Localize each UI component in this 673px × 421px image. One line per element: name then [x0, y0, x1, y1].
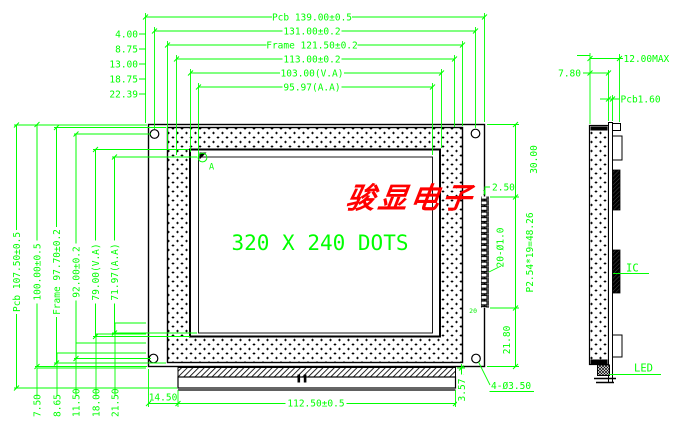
dim-tail-width: 112.50±0.5: [287, 399, 344, 410]
dim-aa-height: 71.97(A.A): [110, 243, 121, 300]
dim-offset-3: 13.00: [109, 60, 138, 71]
front-view: A 320 X 240 DOTS 骏显电子: [149, 125, 490, 391]
side-view: [590, 123, 623, 383]
dim-va-width: 103.00(V.A): [281, 69, 344, 80]
side-dimension-ticks: [588, 56, 623, 102]
pin-number-first: 1: [482, 189, 486, 197]
dim-pcb-height: Pcb 107.50±0.5: [12, 232, 23, 312]
dim-pcb-thickness: Pcb1.60: [621, 95, 661, 106]
side-ic-2: [613, 250, 621, 293]
dim-hole-span-h: 131.00±0.2: [283, 27, 340, 38]
dim-bl-1: 7.50: [33, 394, 44, 417]
connector-pin-row: [481, 197, 489, 308]
dim-frame-height: Frame 97.70±0.2: [52, 229, 63, 315]
side-connector-bottom: [613, 335, 623, 357]
dim-max-thickness: 12.00MAX: [624, 54, 670, 65]
lcd-module-drawing: A 320 X 240 DOTS 骏显电子 Pcb 139.00±0.5 131…: [0, 0, 673, 421]
dim-bl-3: 11.50: [72, 388, 83, 417]
dim-frame-width: Frame 121.50±0.2: [266, 41, 358, 52]
mount-hole-bottom-right: [472, 354, 481, 363]
side-extension-lines: [577, 53, 620, 124]
pin-number-last: 20: [469, 307, 477, 315]
dim-offset-2: 8.75: [115, 45, 138, 56]
side-ic-1: [613, 170, 621, 210]
dim-hole-span-v: 92.00±0.2: [72, 246, 83, 297]
mount-hole-top-left: [150, 130, 159, 139]
side-connector-top: [613, 136, 623, 160]
display-resolution-label: 320 X 240 DOTS: [231, 231, 408, 255]
dim-pin-holes: 20-Ø1.0: [496, 227, 507, 267]
backlight-pin: [304, 375, 307, 383]
dim-module-thickness: 7.80: [558, 69, 581, 80]
dim-pin-edge: 2.50: [492, 183, 515, 194]
dim-bl-4: 18.00: [92, 388, 103, 417]
dim-aa-width: 95.97(A.A): [283, 83, 340, 94]
dim-mount-holes: 4-Ø3.50: [491, 381, 531, 392]
led-label: LED: [634, 363, 653, 375]
dim-va-height: 79.00(V.A): [91, 243, 102, 300]
dim-bl-2: 8.65: [53, 394, 64, 417]
backlight-pin: [298, 375, 301, 383]
dim-100: 100.00±0.5: [33, 243, 44, 300]
ic-label: IC: [626, 263, 639, 275]
dim-offset-5: 22.39: [109, 90, 138, 101]
side-pcb: [609, 123, 613, 383]
dim-pin-pitch: P2.54*19=48.26: [525, 212, 536, 292]
dim-bl-5: 21.50: [111, 388, 122, 417]
watermark-text: 骏显电子: [344, 181, 477, 215]
dim-pcb-width: Pcb 139.00±0.5: [272, 13, 352, 24]
dim-strip-height: 3.57: [457, 379, 468, 402]
dim-offset-1: 4.00: [115, 30, 138, 41]
corner-marker-label: A: [209, 163, 214, 173]
side-dimensions: 7.80 12.00MAX Pcb1.60 IC LED: [558, 53, 669, 375]
side-led-block: [598, 365, 610, 376]
side-top-block: [613, 124, 621, 131]
dim-113: 113.00±0.2: [283, 55, 340, 66]
backlight-strip: [178, 368, 456, 378]
drawing-canvas: A 320 X 240 DOTS 骏显电子 Pcb 139.00±0.5 131…: [0, 0, 673, 421]
mount-hole-top-right: [471, 129, 480, 138]
dim-pin-to-bottom: 21.80: [502, 325, 513, 354]
side-panel-bottom-bar: [591, 360, 608, 365]
backlight-tail: [178, 377, 456, 388]
side-panel-top-bar: [591, 127, 608, 131]
side-panel-body: [590, 126, 609, 365]
dim-offset-4: 18.75: [109, 75, 138, 86]
dim-pcb-to-tail: 14.50: [149, 393, 178, 404]
dim-top-to-pin1: 30.00: [529, 145, 540, 174]
